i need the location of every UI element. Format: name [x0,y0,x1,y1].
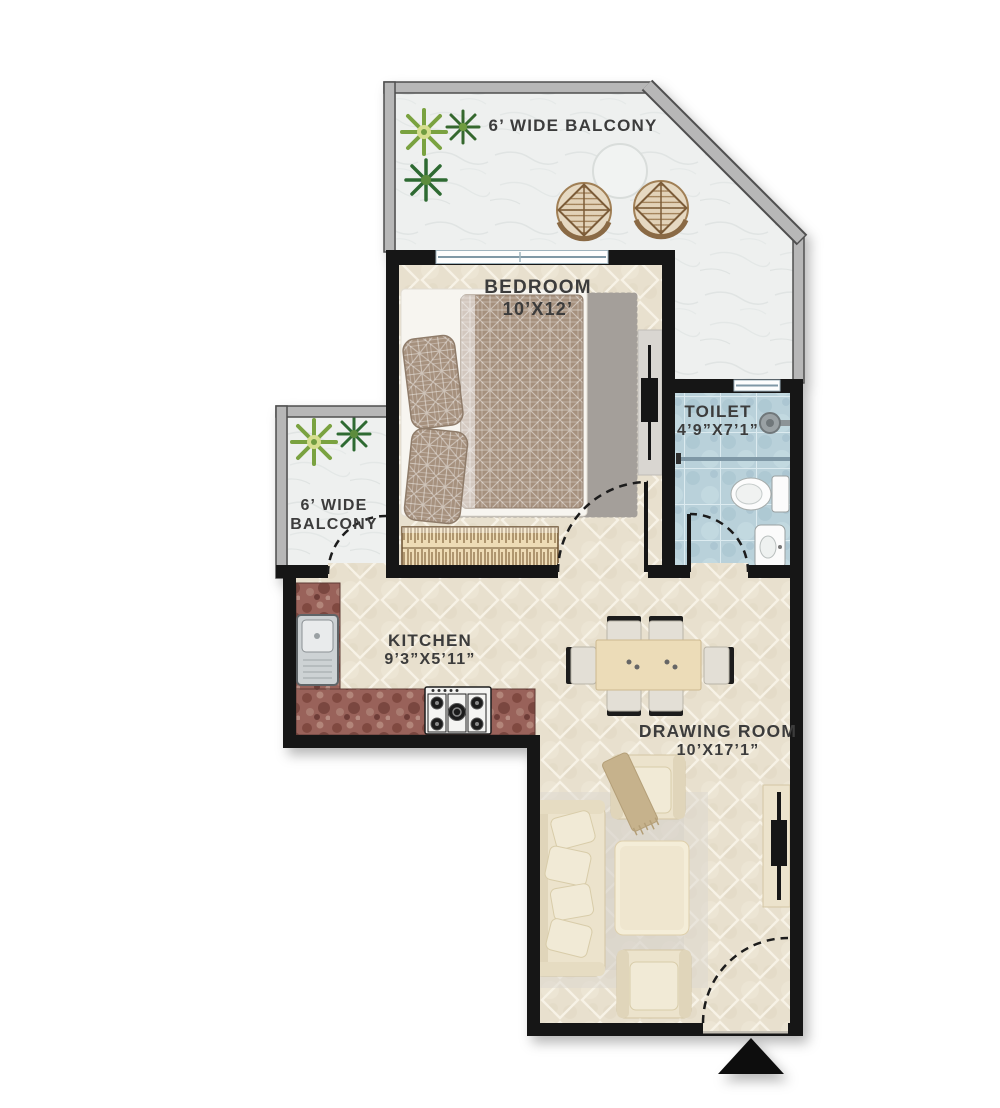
kitchen-sink-icon [297,615,338,685]
room-label-kitchen: KITCHEN 9’3”X5’11” [384,631,475,670]
floor-plan-page: 6’ WIDE BALCONY BEDROOM 10’X12’ TOILET 4… [0,0,1000,1108]
window-icon [436,251,608,264]
room-label-balcony-left: 6’ WIDE BALCONY [290,497,378,535]
pillow-icon [403,427,468,524]
plant-icon [292,420,336,464]
room-label-bedroom: BEDROOM 10’X12’ [484,277,592,321]
double-bed-icon [461,295,583,508]
plant-icon [338,418,370,450]
armchair-icon [617,950,691,1018]
bedroom-tv-unit [638,330,662,475]
coffee-table-icon [615,841,689,935]
patio-chair-icon [634,181,688,237]
entrance-threshold [703,1031,788,1034]
dining-chair-icon [566,647,596,684]
balcony-doorway [328,563,386,580]
window-icon [734,380,780,391]
plant-icon [406,160,446,200]
dining-chair-icon [649,688,683,716]
dining-chair-icon [607,688,641,716]
room-label-balcony-top: 6’ WIDE BALCONY [488,116,657,136]
door-leaf [644,482,648,572]
room-label-drawing-room: DRAWING ROOM 10’X17’1” [639,721,797,761]
washbasin-icon [755,525,785,569]
toilet-doorway [690,563,748,580]
door-leaf [687,514,691,572]
plant-icon [447,111,479,143]
dining-table-icon [596,640,701,690]
floor-plan-canvas [0,0,1000,1108]
kitchen-counter-bottom [296,689,535,735]
gas-stove-icon [425,687,491,734]
plant-icon [402,110,446,154]
bedroom-doorway [558,563,648,580]
sofa-icon [532,800,605,976]
north-arrow-icon [718,1038,784,1074]
wardrobe-icon [402,527,558,569]
room-label-toilet: TOILET 4’9”X7’1” [677,402,759,441]
toilet-wc-icon [731,476,789,512]
dining-chair-icon [704,647,734,684]
pillow-icon [402,334,465,430]
balcony-left-floor [288,416,388,568]
living-tv-unit [763,785,790,907]
patio-chair-icon [557,183,611,239]
